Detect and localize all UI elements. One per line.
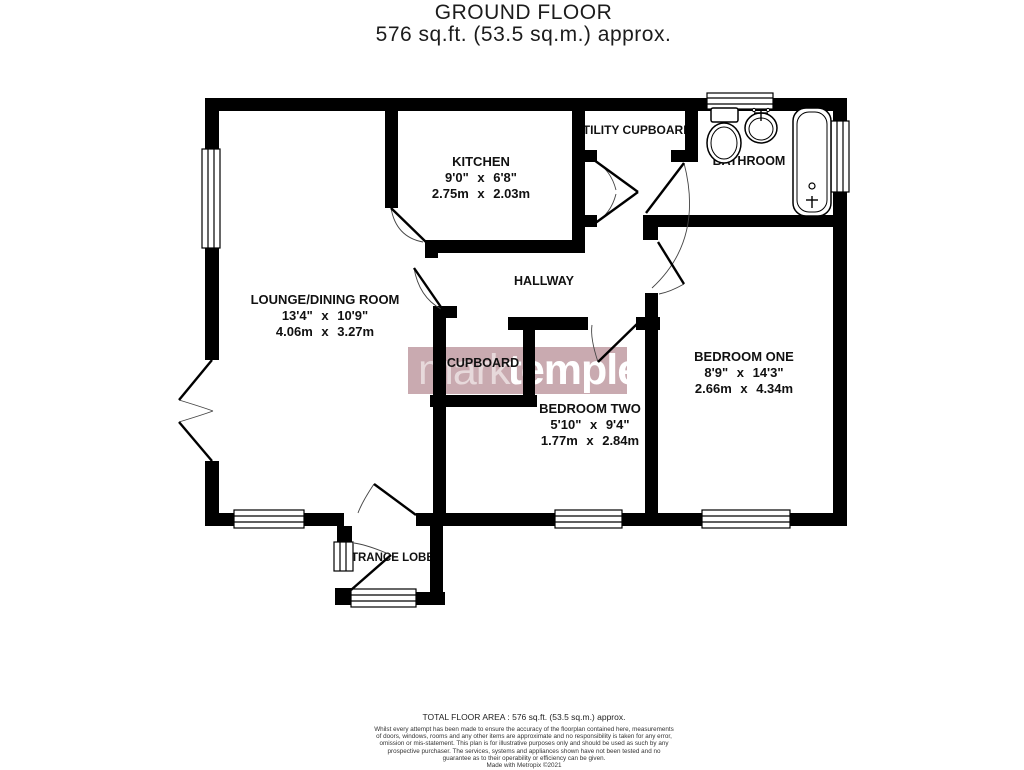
kitchen-name: KITCHEN: [432, 154, 530, 170]
bathroom-door: [646, 163, 684, 213]
watermark: marktempler: [408, 347, 627, 394]
lounge-metric: 4.06m x 3.27m: [251, 324, 400, 340]
bedroom-two-metric: 1.77m x 2.84m: [539, 433, 641, 449]
lounge-name: LOUNGE/DINING ROOM: [251, 292, 400, 308]
metropix-credit: Made with Metropix ©2021: [24, 762, 1024, 770]
lounge-imperial: 13'4" x 10'9": [251, 308, 400, 324]
bedroom-one-imperial: 8'9" x 14'3": [694, 365, 794, 381]
total-floor-area: TOTAL FLOOR AREA : 576 sq.ft. (53.5 sq.m…: [24, 712, 1024, 722]
window-bathroom-right: [831, 121, 849, 192]
window-lounge-bottom: [234, 510, 304, 528]
plan-title-line2: 576 sq.ft. (53.5 sq.m.) approx.: [23, 24, 1024, 46]
watermark-templer: templer: [508, 347, 627, 394]
floorplan-page: { "title": { "line1": "GROUND FLOOR", "l…: [0, 0, 1024, 768]
cupboard-label: CUPBOARD: [447, 356, 519, 370]
utility-cupboard-label: UTILITY CUPBOARD: [574, 123, 692, 137]
lounge-label: LOUNGE/DINING ROOM 13'4" x 10'9" 4.06m x…: [251, 292, 400, 340]
plan-title-line1: GROUND FLOOR: [23, 2, 1024, 24]
entrance-lobby-label: ENTRANCE LOBBY: [335, 552, 442, 564]
bathroom-label: BATHROOM: [713, 154, 786, 168]
utility-door-left: [594, 160, 638, 192]
bedroom-one-name: BEDROOM ONE: [694, 349, 794, 365]
lounge-entry-door: [374, 484, 416, 515]
bathtub-icon: [793, 108, 831, 216]
window-lounge-left: [202, 149, 220, 248]
bedroom-two-name: BEDROOM TWO: [539, 401, 641, 417]
kitchen-imperial: 9'0" x 6'8": [432, 170, 530, 186]
footer: TOTAL FLOOR AREA : 576 sq.ft. (53.5 sq.m…: [24, 712, 1024, 770]
hallway-label: HALLWAY: [514, 274, 574, 288]
window-bedroom-two-bottom: [555, 510, 622, 528]
utility-door-right: [594, 192, 638, 224]
bedroom-two-label: BEDROOM TWO 5'10" x 9'4" 1.77m x 2.84m: [539, 401, 641, 449]
sink-icon: [745, 108, 777, 143]
window-bathroom-top: [707, 93, 773, 109]
kitchen-metric: 2.75m x 2.03m: [432, 186, 530, 202]
plan-title: GROUND FLOOR 576 sq.ft. (53.5 sq.m.) app…: [23, 2, 1024, 46]
window-bedroom-one-bottom: [702, 510, 790, 528]
french-door-bottom: [179, 422, 212, 461]
bedroom-one-metric: 2.66m x 4.34m: [694, 381, 794, 397]
bedroom-one-door: [658, 242, 684, 284]
french-door-top: [179, 360, 212, 400]
kitchen-label: KITCHEN 9'0" x 6'8" 2.75m x 2.03m: [432, 154, 530, 202]
window-lobby-bottom: [351, 589, 416, 607]
disclaimer-text: Whilst every attempt has been made to en…: [373, 726, 675, 762]
lounge-door: [414, 268, 443, 310]
kitchen-door: [391, 208, 427, 243]
bedroom-one-label: BEDROOM ONE 8'9" x 14'3" 2.66m x 4.34m: [694, 349, 794, 397]
bedroom-two-imperial: 5'10" x 9'4": [539, 417, 641, 433]
watermark-mark: mark: [418, 347, 510, 394]
